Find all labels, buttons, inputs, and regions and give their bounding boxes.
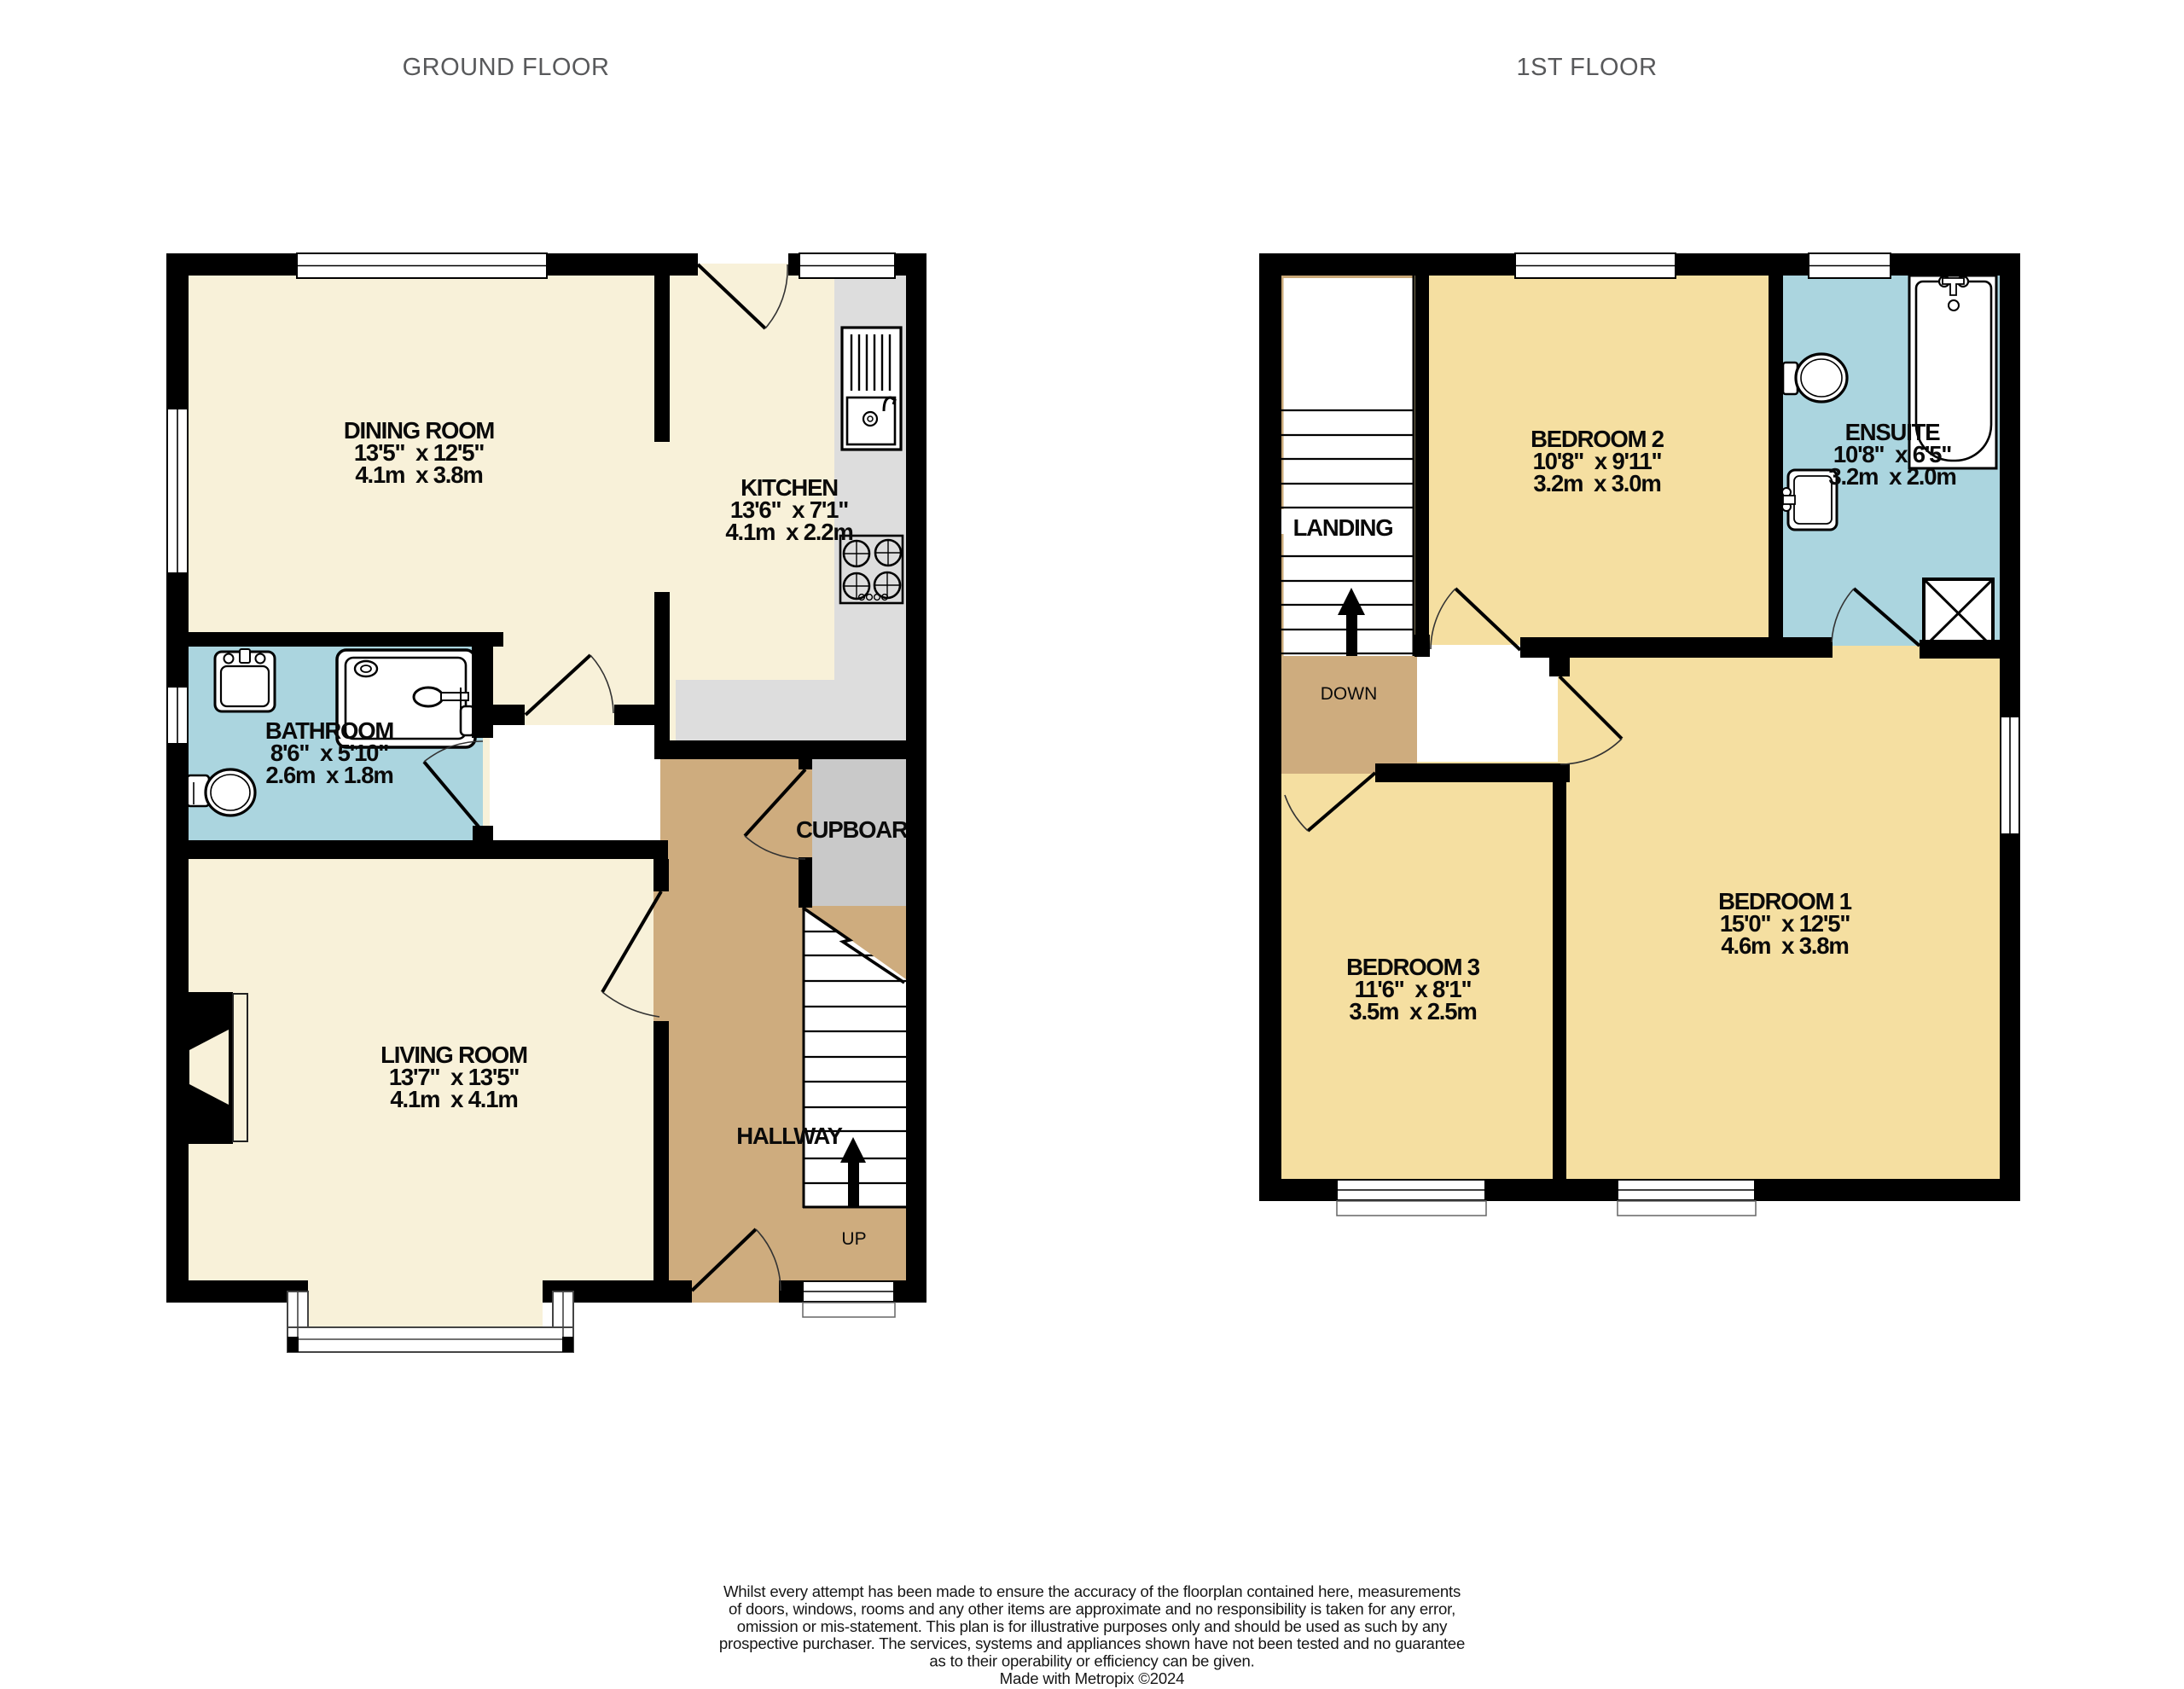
svg-text:LANDING: LANDING (1293, 514, 1393, 541)
svg-text:4.1m x 2.2m: 4.1m x 2.2m (725, 519, 852, 545)
svg-text:3.2m x 2.0m: 3.2m x 2.0m (1828, 463, 1955, 490)
svg-text:as to their operability or eff: as to their operability or efficiency ca… (929, 1652, 1254, 1670)
svg-text:Made with Metropix ©2024: Made with Metropix ©2024 (1000, 1669, 1185, 1687)
svg-text:1ST FLOOR: 1ST FLOOR (1516, 54, 1657, 81)
svg-text:of doors, windows, rooms and a: of doors, windows, rooms and any other i… (729, 1599, 1455, 1617)
svg-text:omission or mis-statement. Thi: omission or mis-statement. This plan is … (737, 1617, 1448, 1635)
svg-text:UP: UP (841, 1229, 866, 1249)
svg-text:CUPBOARD: CUPBOARD (796, 816, 924, 843)
svg-text:GROUND FLOOR: GROUND FLOOR (403, 54, 610, 81)
svg-text:3.5m x 2.5m: 3.5m x 2.5m (1349, 998, 1476, 1024)
svg-text:prospective purchaser. The ser: prospective purchaser. The services, sys… (719, 1634, 1465, 1652)
svg-text:4.1m x 4.1m: 4.1m x 4.1m (390, 1086, 517, 1112)
svg-text:4.6m x 3.8m: 4.6m x 3.8m (1721, 932, 1848, 959)
svg-text:HALLWAY: HALLWAY (736, 1123, 842, 1149)
svg-text:DOWN: DOWN (1321, 684, 1378, 704)
svg-text:2.6m x 1.8m: 2.6m x 1.8m (265, 762, 392, 788)
svg-text:4.1m x 3.8m: 4.1m x 3.8m (355, 461, 482, 488)
svg-text:3.2m x 3.0m: 3.2m x 3.0m (1533, 470, 1660, 496)
svg-text:Whilst every attempt has been: Whilst every attempt has been made to en… (723, 1582, 1461, 1600)
